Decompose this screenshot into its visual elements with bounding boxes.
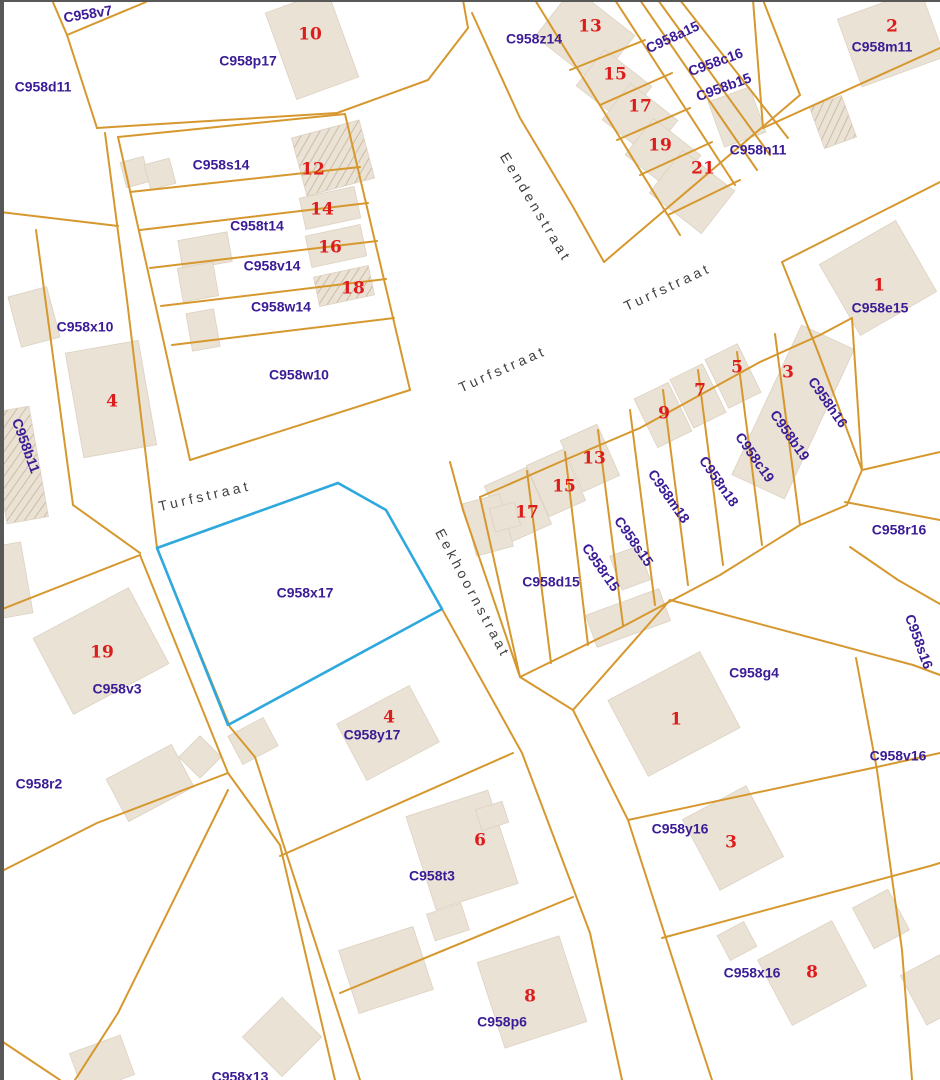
parcel-code-label: C958v7 [62, 2, 113, 26]
building [186, 309, 220, 351]
house-number-label: 3 [782, 363, 794, 383]
street-name-label: Eendenstraat [497, 150, 575, 266]
parcel-code-label: C958v3 [92, 681, 141, 697]
parcel-boundary [862, 452, 940, 470]
building [144, 158, 176, 190]
parcel-code-label: C958v14 [244, 258, 301, 274]
parcel-boundary [856, 658, 912, 1080]
parcel-boundary [763, 48, 940, 128]
parcel-code-label: C958d15 [522, 574, 580, 590]
house-number-label: 13 [582, 449, 606, 469]
house-number-label: 3 [725, 833, 737, 853]
street-name-label: Turfstraat [621, 260, 713, 314]
house-number-label: 7 [694, 381, 706, 401]
building [8, 287, 60, 348]
highlighted-parcel-layer [157, 483, 442, 725]
parcel-code-label: C958a15 [643, 17, 701, 56]
parcel-boundary [67, 35, 97, 128]
parcel-code-label: C958w10 [269, 367, 329, 383]
house-number-label: 15 [603, 65, 627, 85]
house-number-label: 12 [301, 160, 325, 180]
house-number-label: 8 [806, 963, 818, 983]
house-number-label: 14 [310, 200, 334, 220]
parcel-code-label: C958r2 [16, 776, 63, 792]
building [177, 262, 218, 302]
cadastral-map: EendenstraatTurfstraatTurfstraatTurfstra… [0, 0, 940, 1080]
building [427, 903, 470, 941]
parcel-code-label: C958s16 [902, 612, 937, 671]
house-number-label: 17 [515, 503, 539, 523]
house-number-label: 4 [106, 392, 118, 412]
parcel-code-label: C958y17 [344, 727, 401, 743]
parcel-boundary [0, 212, 118, 226]
parcel-code-label: C958r16 [872, 522, 927, 538]
parcel-code-label: C958x10 [57, 319, 114, 335]
house-number-label: 10 [298, 25, 322, 45]
house-number-label: 19 [648, 136, 672, 156]
parcel-code-label: C958x16 [724, 965, 781, 981]
parcel-code-label: C958n18 [696, 453, 742, 510]
parcel-code-label: C958g4 [729, 665, 779, 681]
house-number-label: 15 [552, 477, 576, 497]
house-number-label: 8 [524, 987, 536, 1007]
parcel-boundary [850, 547, 940, 604]
buildings-layer [0, 0, 940, 1080]
parcel-code-label: C958n11 [730, 142, 787, 158]
building [265, 0, 358, 100]
parcel-code-label: C958p17 [219, 53, 277, 69]
parcel-boundary [845, 502, 940, 520]
house-number-label: 1 [670, 710, 682, 730]
building [339, 927, 434, 1014]
building [228, 717, 278, 764]
parcel-boundary [75, 790, 228, 1080]
house-number-label: 1 [873, 276, 885, 296]
house-number-label: 5 [731, 358, 743, 378]
parcel-code-label: C958v16 [870, 748, 927, 764]
building [242, 997, 321, 1076]
parcel-code-label: C958m11 [852, 39, 913, 55]
house-number-label: 21 [691, 159, 715, 179]
parcel-code-label: C958w14 [251, 299, 311, 315]
map-frame-left-edge [0, 0, 4, 1080]
parcel-boundary [670, 600, 940, 675]
house-number-label: 13 [578, 17, 602, 37]
house-number-label: 2 [886, 17, 898, 37]
house-number-label: 9 [658, 404, 670, 424]
parcel-boundary [73, 505, 140, 553]
cadastral-map-viewport[interactable]: EendenstraatTurfstraatTurfstraatTurfstra… [0, 0, 940, 1080]
parcel-code-label: C958x13 [212, 1069, 269, 1080]
parcel-boundary [190, 390, 410, 460]
parcel-code-label: C958s14 [193, 157, 250, 173]
highlighted-parcel-outline[interactable] [157, 483, 442, 725]
parcel-code-label: C958x17 [277, 585, 334, 601]
parcel-code-label: C958m18 [645, 466, 693, 526]
building [120, 156, 150, 187]
building [0, 542, 33, 618]
house-number-label: 4 [383, 708, 395, 728]
parcel-code-label: C958d11 [15, 79, 72, 95]
parcel-boundary [763, 0, 800, 95]
house-number-label: 17 [628, 97, 652, 117]
parcel-boundary [658, 0, 770, 155]
parcel-code-label: C958y16 [652, 821, 709, 837]
street-name-label: Turfstraat [456, 342, 549, 395]
parcel-boundary [0, 1040, 60, 1080]
house-number-label: 16 [318, 238, 342, 258]
parcel-boundary [520, 677, 573, 710]
house-number-label: 6 [474, 831, 486, 851]
parcel-code-label: C958z14 [506, 31, 562, 47]
building [717, 922, 757, 961]
house-number-label: 19 [90, 643, 114, 663]
street-name-label: Turfstraat [157, 477, 253, 514]
parcel-code-label: C958t3 [409, 868, 455, 884]
parcel-code-label: C958t14 [230, 218, 284, 234]
map-frame-top-edge [0, 0, 940, 2]
parcel-code-label: C958p6 [477, 1014, 527, 1030]
house-number-label: 18 [341, 279, 365, 299]
parcel-code-label: C958e15 [852, 300, 909, 316]
